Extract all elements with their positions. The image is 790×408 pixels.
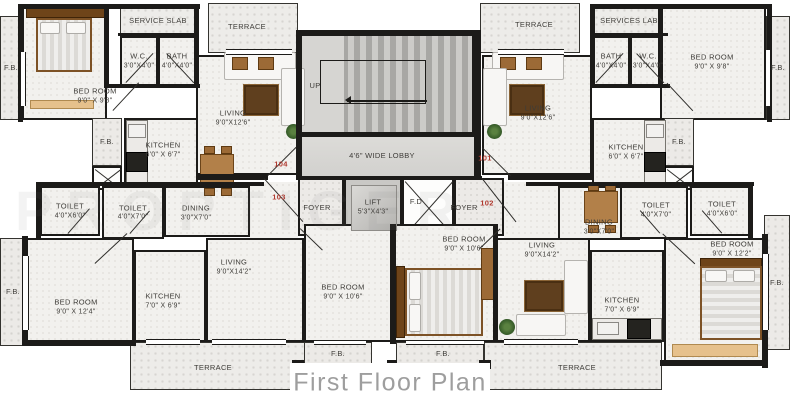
window — [765, 50, 771, 106]
label-kitchen_br: KITCHEN7'0" X 6'9" — [604, 296, 639, 315]
room-name: DINING — [181, 204, 212, 214]
room-dimensions: 4'0"X6'0" — [707, 209, 738, 218]
wall — [590, 84, 670, 88]
room-name: BED ROOM — [710, 240, 753, 250]
label-toilet_r2: TOILET4'0"X6'0" — [707, 200, 738, 219]
furniture-rug — [524, 280, 564, 312]
room-dimensions: 9'0"X14'2" — [525, 250, 560, 259]
furniture-pillow — [705, 270, 727, 282]
wall — [18, 4, 200, 9]
room-name: TOILET — [707, 200, 738, 210]
wall — [590, 4, 772, 9]
furniture-rug — [672, 344, 758, 357]
room-name: F.B. — [4, 63, 18, 73]
room-name: KITCHEN — [604, 296, 639, 306]
window — [504, 339, 578, 345]
room-name: BED ROOM — [321, 283, 364, 293]
room-dimensions: 9'0"X12'6" — [521, 113, 556, 122]
furniture-plant — [487, 124, 502, 139]
label-kitchen_bl: KITCHEN7'0" X 6'9" — [145, 292, 180, 311]
label-living_br: LIVING9'0"X14'2" — [525, 241, 560, 260]
room-name: F.B. — [100, 137, 114, 147]
room-name: BED ROOM — [54, 298, 97, 308]
room-name: TERRACE — [558, 363, 596, 373]
window — [22, 256, 29, 330]
furniture-chair — [221, 146, 232, 154]
furniture-sofa — [516, 314, 566, 336]
room-dimensions: 3'0"X7'0" — [584, 227, 615, 236]
room-name: F.B. — [770, 278, 784, 288]
wall — [508, 174, 592, 180]
floor-plan: First Floor Plan PROPTIGER F.B.BED ROOM9… — [0, 0, 790, 408]
unit-number-103: 103 — [272, 193, 285, 201]
label-fb_bl: F.B. — [6, 287, 20, 297]
wall — [104, 84, 200, 88]
window — [20, 52, 26, 106]
room-name: TERRACE — [194, 363, 232, 373]
label-foyer_r: FOYER — [450, 203, 477, 213]
window — [498, 49, 564, 55]
label-kitchen_r: KITCHEN6'0" X 6'7" — [608, 143, 643, 162]
label-living_l: LIVING9'0"X12'6" — [216, 109, 251, 128]
furniture-plant — [499, 319, 515, 335]
room-dimensions: 9'0" X 12'4" — [54, 307, 97, 316]
window — [146, 339, 200, 345]
label-fd: F.D — [410, 197, 422, 207]
label-living_bl: LIVING9'0"X14'2" — [217, 258, 252, 277]
room-bed_bl — [26, 238, 134, 342]
furniture-chaise — [564, 260, 588, 314]
furniture-bed-headboard — [396, 266, 405, 338]
label-living_r: LIVING9'0"X12'6" — [521, 104, 556, 123]
furniture-pillow — [409, 304, 421, 332]
room-name: SERVICES LAB — [600, 16, 658, 26]
window — [314, 340, 366, 345]
wall — [104, 4, 109, 88]
furniture-cushion — [526, 57, 542, 70]
label-terrace_br: TERRACE — [558, 363, 596, 373]
label-terrace_tl: TERRACE — [228, 22, 266, 32]
window — [226, 49, 292, 55]
furniture-cushion — [258, 57, 274, 70]
wall — [194, 4, 199, 88]
unit-number-104: 104 — [274, 160, 287, 168]
room-name: KITCHEN — [145, 292, 180, 302]
room-name: LIVING — [217, 258, 252, 268]
room-dimensions: 6'0" X 6'7" — [145, 150, 180, 159]
wall — [660, 360, 766, 366]
label-bed_bc_l: BED ROOM9'0" X 10'6" — [321, 283, 364, 302]
label-foyer_l: FOYER — [303, 203, 330, 213]
room-name: DINING — [584, 218, 615, 228]
furniture-pillow — [733, 270, 755, 282]
furniture-pillow — [409, 272, 421, 300]
furniture-cushion — [232, 57, 248, 70]
room-name: BED ROOM — [690, 53, 733, 63]
room-name: F.B. — [672, 137, 686, 147]
room-name: KITCHEN — [145, 141, 180, 151]
room-name: LIFT — [358, 198, 389, 208]
room-living_bl — [206, 238, 304, 342]
furniture-bed-headboard — [26, 8, 106, 18]
room-name: 4'6" WIDE LOBBY — [349, 151, 415, 161]
room-name: LIVING — [216, 109, 251, 119]
label-service_l: SERVICE SLAB — [129, 16, 187, 26]
room-dimensions: 6'0" X 6'7" — [608, 152, 643, 161]
label-fb_br: F.B. — [770, 278, 784, 288]
room-dimensions: 9'0" X 10'6" — [321, 292, 364, 301]
label-lift: LIFT5'3"X4'3" — [358, 198, 389, 217]
stair-arrow-head-icon — [341, 96, 351, 104]
wall — [390, 224, 396, 344]
furniture-chair — [204, 146, 215, 154]
room-name: F.B. — [436, 349, 450, 359]
label-terrace_bl: TERRACE — [194, 363, 232, 373]
label-service_r: SERVICES LAB — [600, 16, 658, 26]
window — [406, 340, 484, 345]
window — [762, 254, 769, 330]
room-name: F.D — [410, 197, 422, 207]
room-name: F.B. — [771, 63, 785, 73]
wall — [526, 182, 754, 186]
stair-railing — [320, 60, 426, 104]
label-bed_br: BED ROOM9'0" X 12'2" — [710, 240, 753, 259]
furniture-sink — [646, 124, 664, 138]
room-entry_r — [504, 182, 558, 238]
furniture-chair — [204, 188, 215, 196]
furniture-pillow — [66, 22, 86, 34]
room-dimensions: 9'0" X 9'8" — [73, 96, 116, 105]
label-bed_bc_r: BED ROOM9'0" X 10'6" — [442, 235, 485, 254]
room-dimensions: 3'0"X7'0" — [181, 213, 212, 222]
unit-number-102: 102 — [480, 199, 493, 207]
wall — [493, 224, 498, 342]
wall — [296, 132, 480, 136]
label-dining_r: DINING3'0"X7'0" — [584, 218, 615, 237]
room-name: TOILET — [641, 201, 672, 211]
wall — [38, 182, 264, 186]
furniture-stove — [627, 319, 651, 339]
label-fb_tl: F.B. — [4, 63, 18, 73]
wall — [296, 30, 480, 36]
wall — [196, 174, 268, 180]
wall — [296, 30, 302, 180]
furniture-chaise — [483, 68, 507, 126]
room-dimensions: 7'0" X 6'9" — [145, 301, 180, 310]
unit-number-101: 101 — [478, 154, 491, 162]
label-bed_tr: BED ROOM9'0" X 9'8" — [690, 53, 733, 72]
label-dining_l: DINING3'0"X7'0" — [181, 204, 212, 223]
room-name: FOYER — [303, 203, 330, 213]
label-fb_tr: F.B. — [771, 63, 785, 73]
room-name: TERRACE — [515, 20, 553, 30]
room-dimensions: 7'0" X 6'9" — [604, 305, 639, 314]
room-name: UP — [309, 81, 320, 91]
room-name: BED ROOM — [73, 87, 116, 97]
room-dimensions: 9'0" X 12'2" — [710, 249, 753, 258]
label-fb_rs: F.B. — [672, 137, 686, 147]
label-terrace_tr: TERRACE — [515, 20, 553, 30]
room-name: TOILET — [55, 202, 86, 212]
label-bed_tl: BED ROOM9'0" X 9'8" — [73, 87, 116, 106]
room-dimensions: 9'0"X14'2" — [217, 267, 252, 276]
furniture-sink — [128, 124, 146, 138]
room-name: F.B. — [6, 287, 20, 297]
room-name: FOYER — [450, 203, 477, 213]
furniture-chair — [221, 188, 232, 196]
room-name: LIVING — [525, 241, 560, 251]
label-toilet_l2: TOILET4'0"X7'0" — [118, 203, 149, 222]
room-name: SERVICE SLAB — [129, 16, 187, 26]
window — [212, 339, 286, 345]
wall — [296, 176, 482, 180]
label-fb_bc_l: F.B. — [331, 349, 345, 359]
wall — [590, 33, 668, 36]
furniture-stove — [644, 152, 666, 172]
wall — [22, 340, 136, 346]
label-bed_bl: BED ROOM9'0" X 12'4" — [54, 298, 97, 317]
label-kitchen_l: KITCHEN6'0" X 6'7" — [145, 141, 180, 160]
label-fb_bc_r: F.B. — [436, 349, 450, 359]
room-name: BED ROOM — [442, 235, 485, 245]
room-name: F.B. — [331, 349, 345, 359]
room-name: TOILET — [118, 203, 149, 213]
wall — [590, 4, 595, 88]
label-lobby: 4'6" WIDE LOBBY — [349, 151, 415, 161]
label-fb_ls: F.B. — [100, 137, 114, 147]
room-name: TERRACE — [228, 22, 266, 32]
wall — [36, 182, 41, 240]
room-name: LIVING — [521, 104, 556, 114]
room-dimensions: 5'3"X4'3" — [358, 207, 389, 216]
room-dimensions: 9'0" X 9'8" — [690, 62, 733, 71]
wall — [748, 182, 753, 240]
room-dimensions: 9'0"X12'6" — [216, 118, 251, 127]
stair-arrow — [347, 100, 427, 102]
room-name: KITCHEN — [608, 143, 643, 153]
label-stairs: UP — [309, 81, 320, 91]
furniture-sink — [597, 322, 619, 335]
wall — [118, 33, 198, 36]
furniture-pillow — [40, 22, 60, 34]
plan-title: First Floor Plan — [293, 369, 486, 398]
